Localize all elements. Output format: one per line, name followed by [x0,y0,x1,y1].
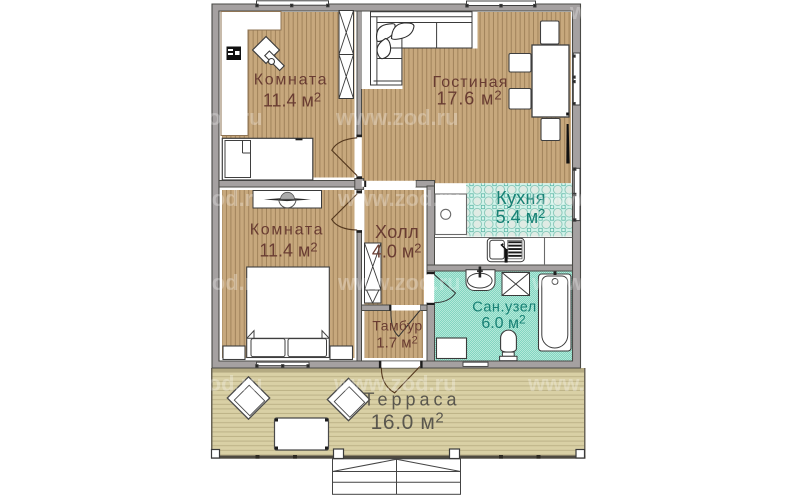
svg-text:www.zod.ru: www.zod.ru [139,371,263,396]
svg-text:11.4 м2: 11.4 м2 [259,240,317,261]
svg-text:16.0 м2: 16.0 м2 [371,410,445,435]
svg-text:www.zod.ru: www.zod.ru [721,371,795,396]
svg-text:Холл: Холл [375,222,419,242]
svg-text:Комната: Комната [254,72,329,89]
svg-text:www.zod.ru: www.zod.ru [143,186,267,211]
svg-text:11.4 м2: 11.4 м2 [263,90,321,111]
svg-text:4.0 м2: 4.0 м2 [372,241,422,262]
svg-text:www.zod.ru: www.zod.ru [333,371,457,396]
svg-text:www.zod.ru: www.zod.ru [143,270,267,295]
svg-text:www.zod.ru: www.zod.ru [531,270,655,295]
svg-text:Комната: Комната [250,222,325,239]
svg-text:www.zod.ru: www.zod.ru [337,186,461,211]
svg-text:www.zod.ru: www.zod.ru [139,105,263,130]
svg-text:www.zod.ru: www.zod.ru [335,105,459,130]
svg-text:1.7 м2: 1.7 м2 [376,335,417,352]
svg-text:www.zod.ru: www.zod.ru [531,186,655,211]
svg-text:www.zod.ru: www.zod.ru [527,371,651,396]
svg-text:www.zod.ru: www.zod.ru [337,270,461,295]
svg-text:Тамбур: Тамбур [372,318,422,334]
svg-text:www.zod.ru: www.zod.ru [569,0,693,24]
svg-text:Сан.узел: Сан.узел [472,300,537,316]
